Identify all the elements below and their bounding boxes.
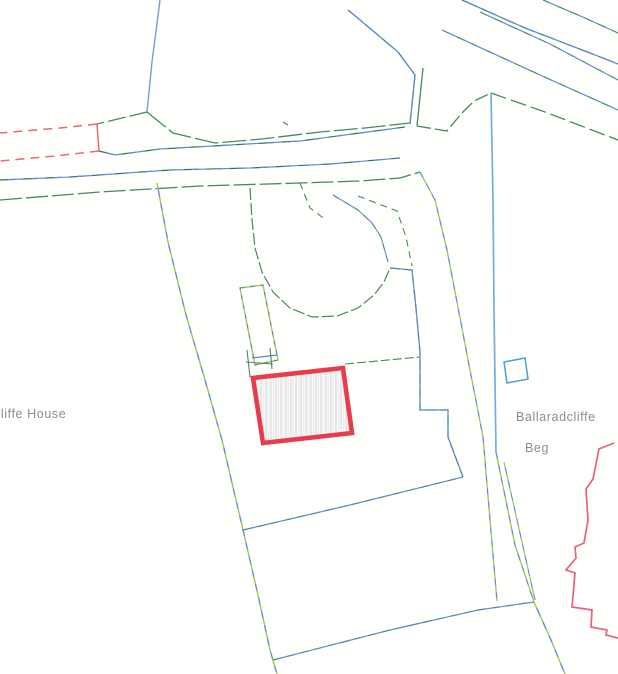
blue-square-outbuilding bbox=[504, 358, 528, 383]
driveway-loop bbox=[250, 188, 390, 317]
adjacent-building-outline bbox=[566, 443, 618, 638]
nw-road-edge bbox=[348, 10, 415, 124]
label-ballaradcliffe: Ballaradcliffe bbox=[516, 410, 596, 424]
label-beg: Beg bbox=[525, 441, 549, 455]
ladder-line-1 bbox=[247, 350, 250, 377]
diagonal-dash-3 bbox=[358, 196, 412, 266]
stream-dashed-continuation bbox=[496, 452, 534, 602]
nw-road-edge bbox=[348, 10, 415, 124]
ne-road-north-edge bbox=[462, 0, 618, 64]
stream-blue-solid bbox=[491, 93, 496, 452]
site-location-map: cliffe House Ballaradcliffe Beg bbox=[0, 0, 618, 674]
field-line-2 bbox=[273, 602, 534, 660]
narrow-building-divider bbox=[252, 355, 277, 358]
ne-road-south-edge bbox=[491, 93, 618, 140]
stream-dashed-continuation bbox=[496, 452, 534, 602]
subject-building bbox=[253, 368, 352, 443]
ne-road-dash-1 bbox=[480, 12, 618, 80]
road-west-edge bbox=[420, 172, 497, 601]
narrow-building bbox=[240, 285, 278, 365]
label-cliffe-house: cliffe House bbox=[0, 407, 66, 421]
junction-notch bbox=[417, 93, 491, 131]
road-west-edge bbox=[420, 172, 497, 601]
tiny-mark bbox=[283, 122, 288, 125]
road-center-line-2 bbox=[0, 158, 400, 180]
stepped-boundary bbox=[390, 268, 463, 477]
red-dash-upper bbox=[0, 124, 97, 133]
red-dash-lower bbox=[0, 151, 99, 161]
road-center-boundary bbox=[99, 127, 405, 155]
diagonal-dash-2 bbox=[333, 195, 388, 262]
junction-neck-east bbox=[417, 68, 423, 126]
ladder-line-2 bbox=[270, 348, 272, 369]
diagonal-dash-1 bbox=[300, 183, 326, 220]
map-canvas bbox=[0, 0, 618, 674]
field-line-2 bbox=[273, 602, 534, 660]
ne-road-dash-1 bbox=[480, 12, 618, 80]
road-south-edge bbox=[0, 172, 420, 200]
road-north-edge bbox=[147, 112, 410, 143]
stepped-boundary bbox=[390, 268, 463, 477]
junction-left-arm bbox=[97, 112, 147, 124]
red-connector bbox=[97, 124, 99, 151]
building-tie-line bbox=[345, 357, 420, 364]
field-line-1 bbox=[243, 477, 463, 530]
top-blue-line bbox=[147, 0, 160, 112]
narrow-building bbox=[240, 285, 278, 365]
ne-road-dash-corner bbox=[543, 0, 618, 33]
diagonal-dash-2 bbox=[333, 195, 388, 262]
